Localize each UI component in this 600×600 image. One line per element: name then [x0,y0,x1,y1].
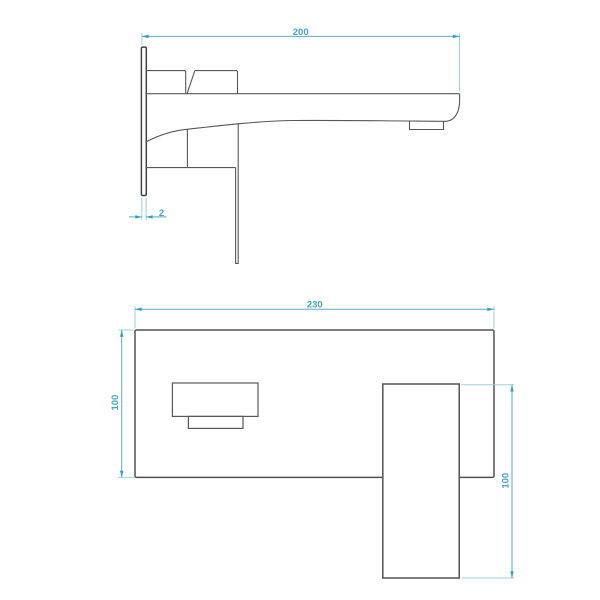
svg-text:200: 200 [293,27,309,38]
svg-text:2: 2 [159,208,164,219]
svg-text:100: 100 [110,395,121,411]
svg-text:230: 230 [307,300,323,311]
svg-text:100: 100 [501,473,512,489]
